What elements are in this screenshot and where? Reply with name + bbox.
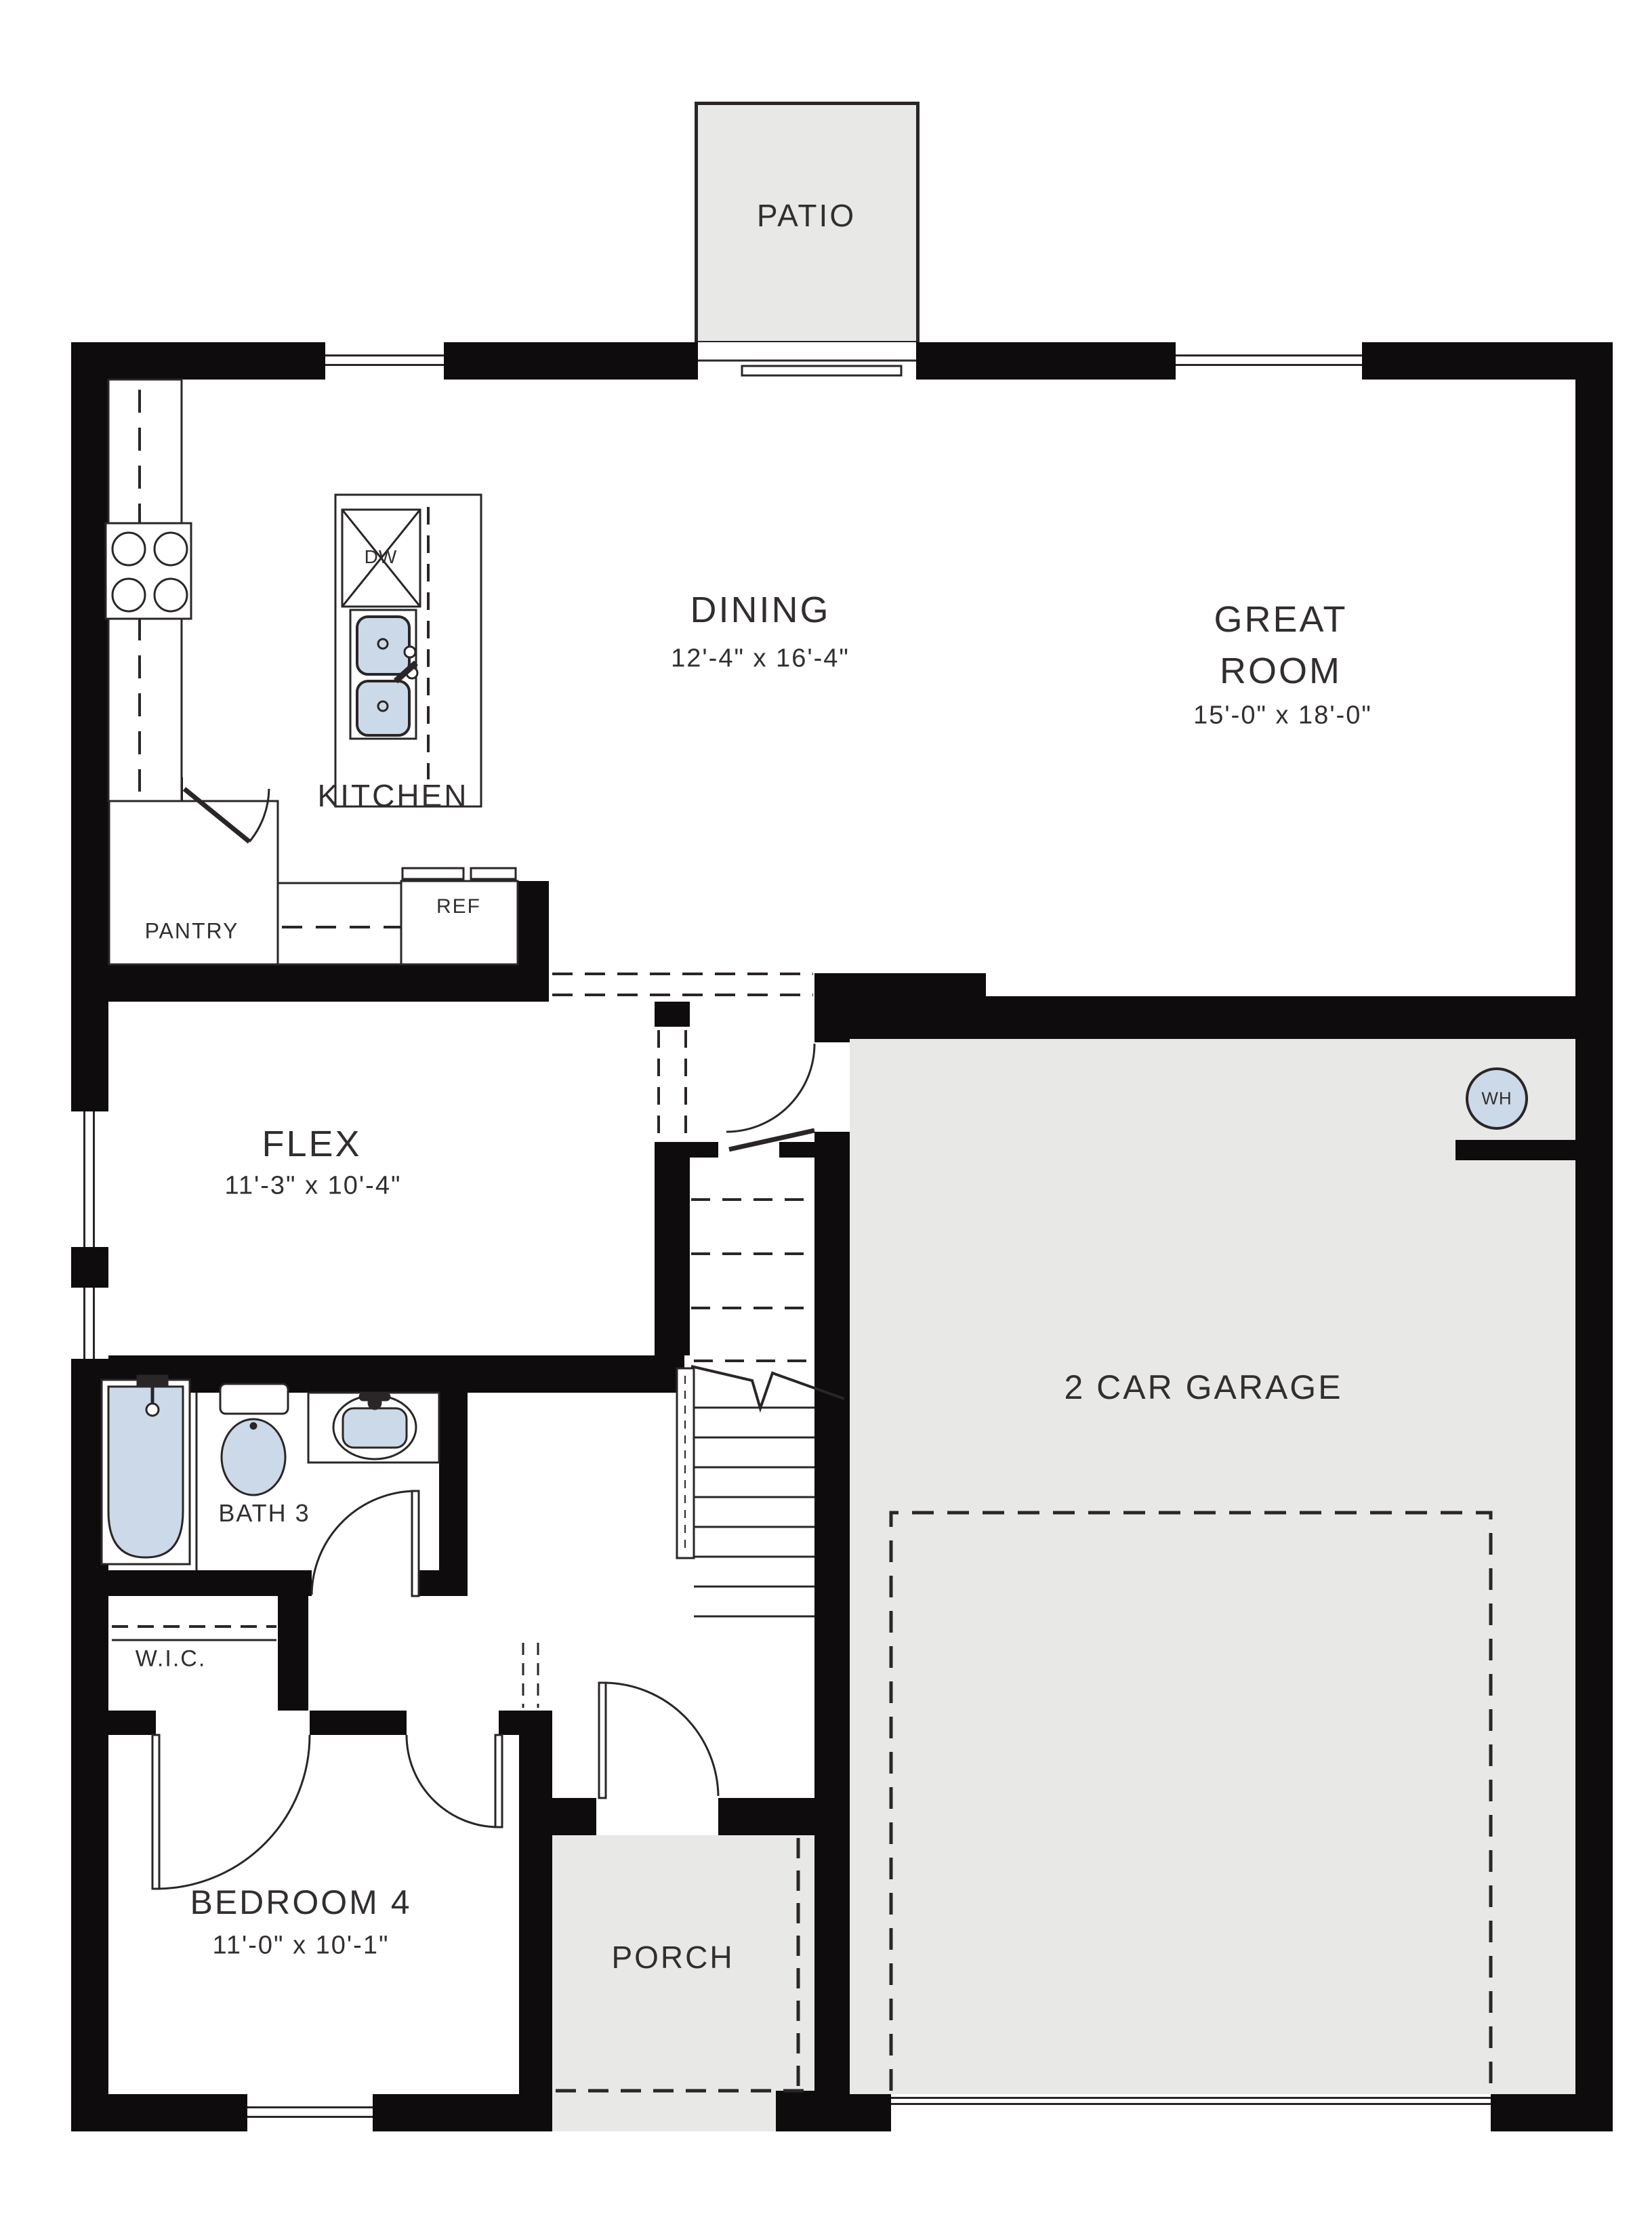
window-bedroom <box>247 2094 373 2131</box>
garage-door-opening <box>891 2094 1491 2131</box>
bathtub-icon <box>102 1376 190 1564</box>
kitchen-sink-icon <box>350 610 417 739</box>
wall-bath-top <box>71 1355 684 1393</box>
wall-flex-right-lower <box>655 1142 690 1355</box>
cased-opening-flex <box>659 1030 686 1140</box>
kitchen-label: KITCHEN <box>318 777 469 814</box>
wall-kitchen-flex <box>71 964 549 1002</box>
ceiling-break-kitchen <box>552 974 813 995</box>
dining-label: DINING <box>690 589 831 631</box>
garage-floor <box>850 1039 1575 2094</box>
wall-pantry-header <box>108 777 183 801</box>
bath-sink-icon <box>308 1393 439 1463</box>
garage-entry-door <box>726 1044 814 1149</box>
flex-label: FLEX <box>262 1123 361 1165</box>
dining-dims: 12'-4" x 16'-4" <box>671 645 850 674</box>
wall-wh-stub <box>1455 1140 1575 1160</box>
stove-icon <box>106 523 191 619</box>
wic-door <box>152 1735 310 1889</box>
dishwasher-label: DW <box>365 546 398 568</box>
kitchen-island <box>335 495 481 806</box>
wall-right <box>1575 380 1613 2094</box>
window-bath <box>71 1288 108 1359</box>
wall-bedroom-right <box>519 1711 552 2094</box>
great-room-label: GREAT ROOM <box>1159 594 1403 697</box>
wall-wic-right <box>278 1596 308 1711</box>
wall-bedroom-top-b <box>310 1711 407 1735</box>
window-flex <box>71 1111 108 1247</box>
wall-front-entry-right <box>718 1798 814 1835</box>
patio-slider-opening <box>698 342 916 380</box>
window-great-room <box>1176 342 1362 380</box>
flex-dims: 11'-3" x 10'-4" <box>225 1172 402 1201</box>
cased-opening-hall <box>523 1643 538 1708</box>
bedroom-door <box>407 1735 502 1827</box>
wall-bath-bottom-right <box>417 1570 468 1596</box>
porch-floor <box>552 1835 814 2131</box>
wall-bath-bottom-left <box>71 1570 312 1596</box>
wall-stair-garage-lower <box>814 1132 850 2094</box>
toilet-icon <box>220 1384 288 1495</box>
wall-kitchen-stub <box>518 881 549 1002</box>
wall-left <box>71 380 108 2131</box>
water-heater-label: WH <box>1481 1088 1512 1109</box>
wall-bedroom-top-a <box>71 1711 156 1735</box>
bath-door <box>312 1491 419 1596</box>
wall-closet-jamb-left <box>690 1142 718 1158</box>
wall-porch-jamb <box>776 2091 814 2131</box>
wall-front-entry-left <box>552 1798 596 1835</box>
pantry-label: PANTRY <box>145 919 239 944</box>
stair-handrail <box>677 1368 694 1558</box>
bedroom4-label: BEDROOM 4 <box>190 1883 411 1922</box>
stair-wall-door-opening <box>814 1042 850 1132</box>
patio-label: PATIO <box>757 197 856 234</box>
wic-label: W.I.C. <box>136 1646 207 1673</box>
porch-label: PORCH <box>611 1939 734 1976</box>
bath3-label: BATH 3 <box>218 1499 310 1528</box>
wall-closet-jamb-right <box>779 1142 814 1158</box>
front-door <box>599 1683 718 1798</box>
garage-label: 2 CAR GARAGE <box>1064 1368 1342 1407</box>
refrigerator-label: REF <box>436 895 481 918</box>
wall-greatroom-garage <box>814 996 1613 1039</box>
bedroom4-dims: 11'-0" x 10'-1" <box>213 1931 390 1961</box>
great-room-dims: 15'-0" x 18'-0" <box>1193 701 1372 731</box>
window-kitchen <box>325 342 444 380</box>
wall-flex-right-upper <box>655 1002 690 1027</box>
wic-shelf <box>112 1627 276 1640</box>
wall-bath-right <box>439 1355 468 1596</box>
kitchen-counter <box>108 380 182 801</box>
floor-plan: PATIO DINING 12'-4" x 16'-4" GREAT ROOM … <box>0 0 1652 2229</box>
